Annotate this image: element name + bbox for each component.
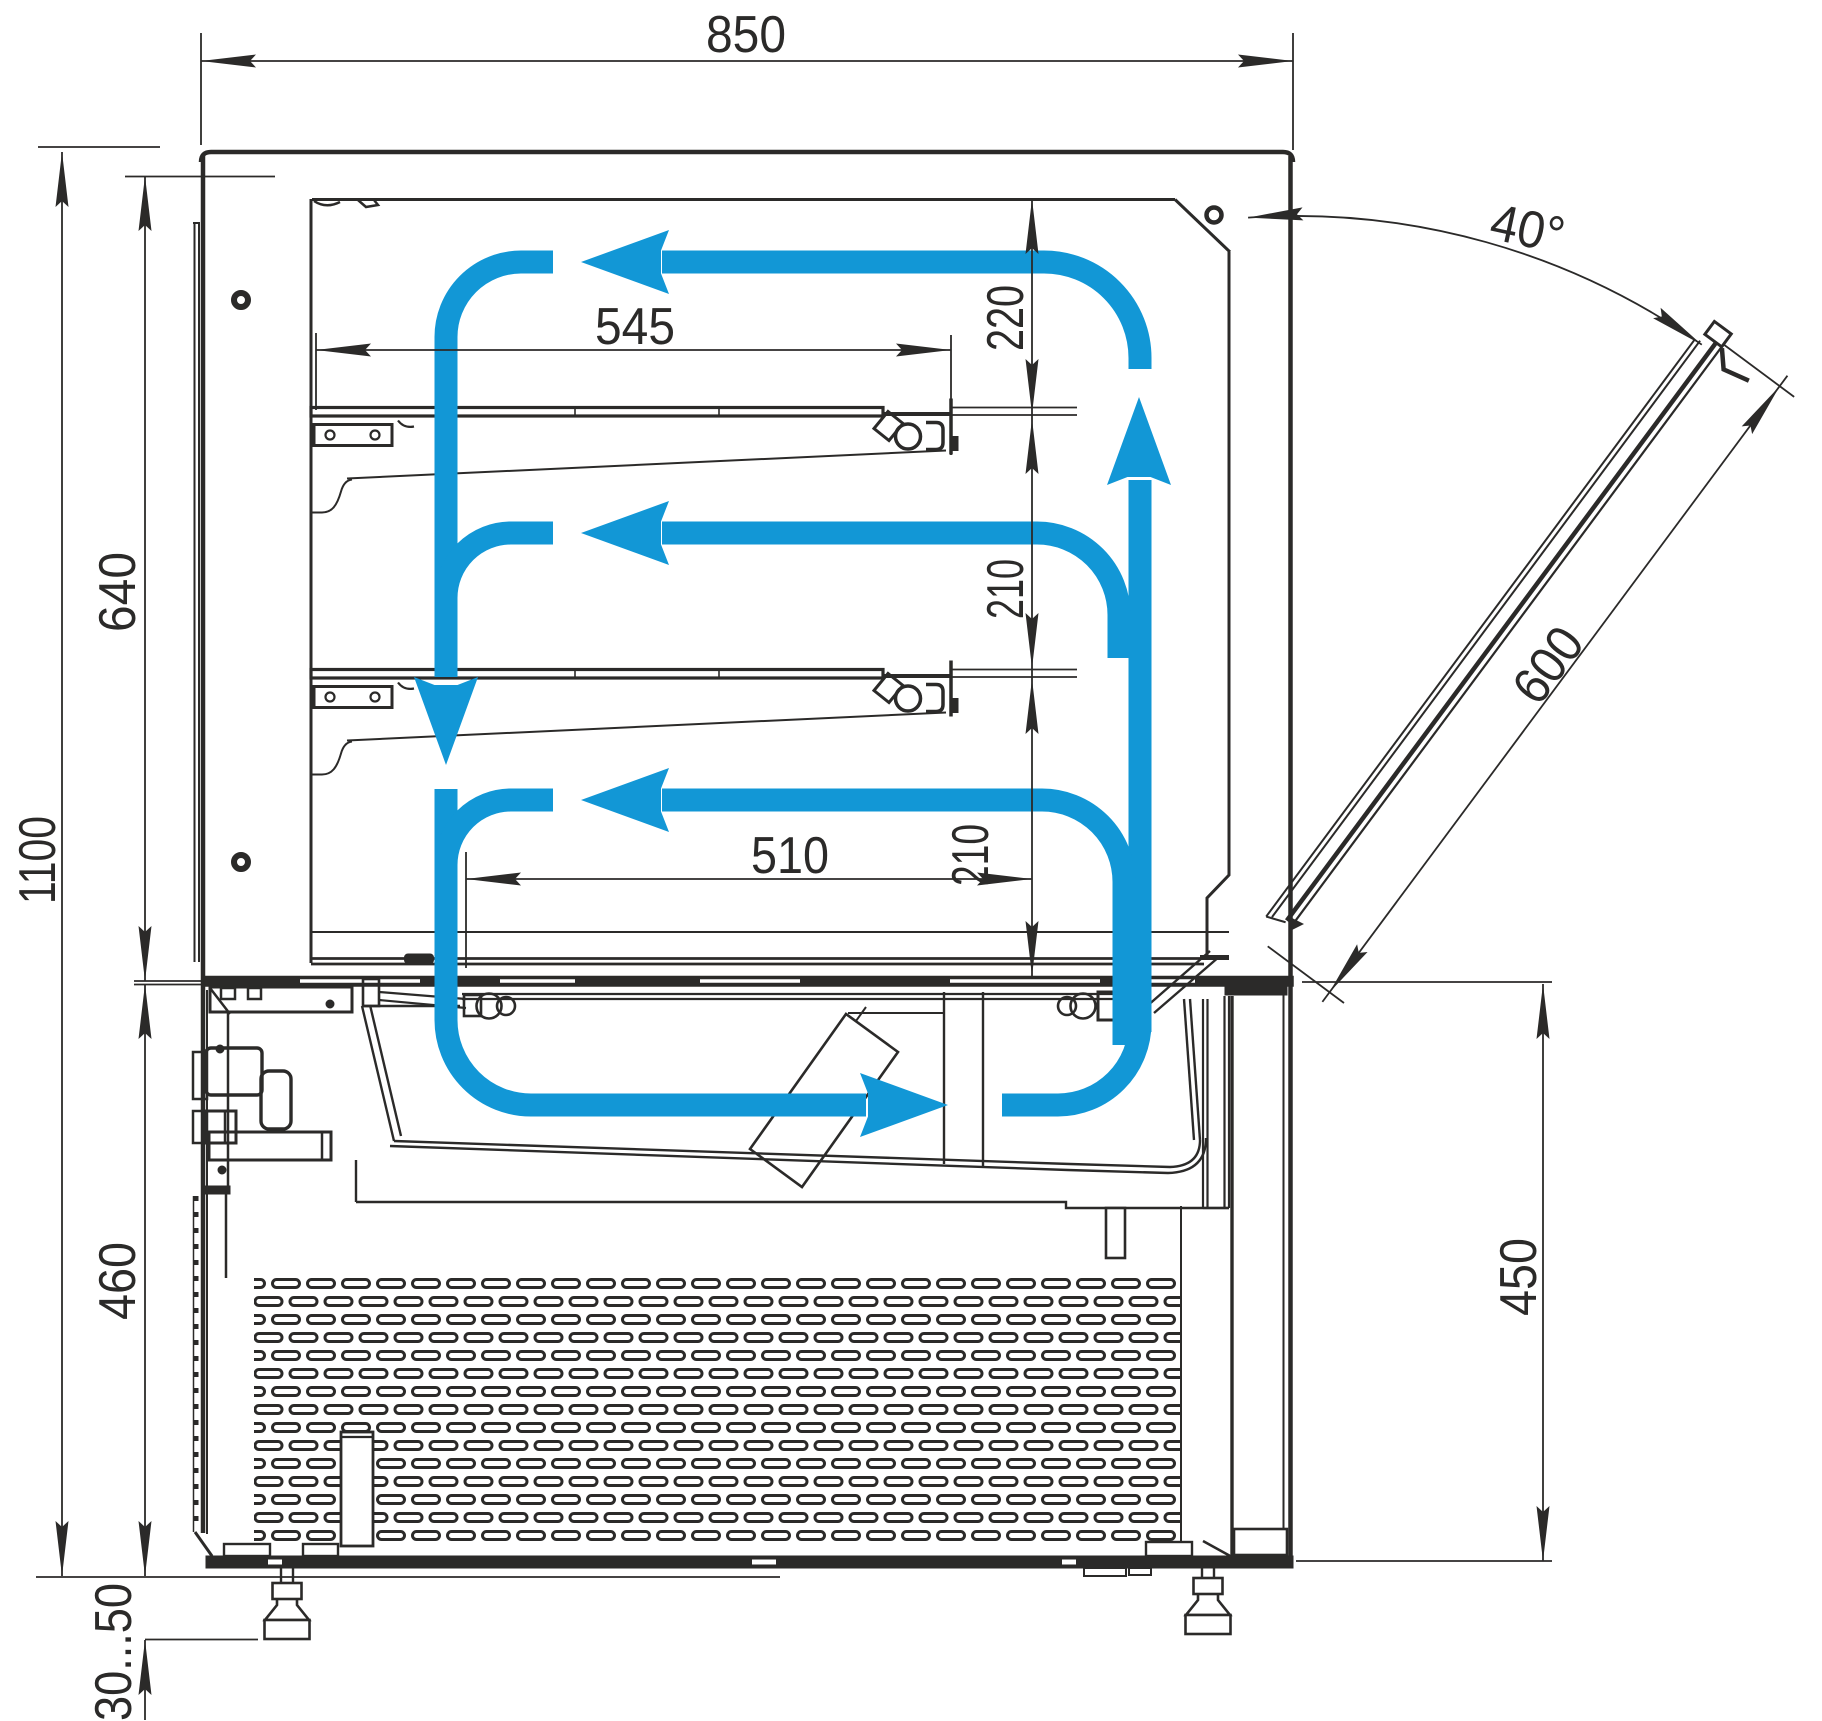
svg-text:850: 850 (706, 6, 786, 64)
svg-text:210: 210 (977, 559, 1035, 619)
svg-text:640: 640 (89, 552, 147, 632)
svg-text:460: 460 (89, 1242, 147, 1320)
svg-text:450: 450 (1490, 1238, 1548, 1316)
svg-text:545: 545 (595, 298, 675, 356)
svg-text:220: 220 (977, 285, 1035, 351)
svg-text:1100: 1100 (9, 816, 67, 904)
svg-text:30...50: 30...50 (85, 1583, 143, 1721)
svg-text:510: 510 (751, 827, 829, 885)
